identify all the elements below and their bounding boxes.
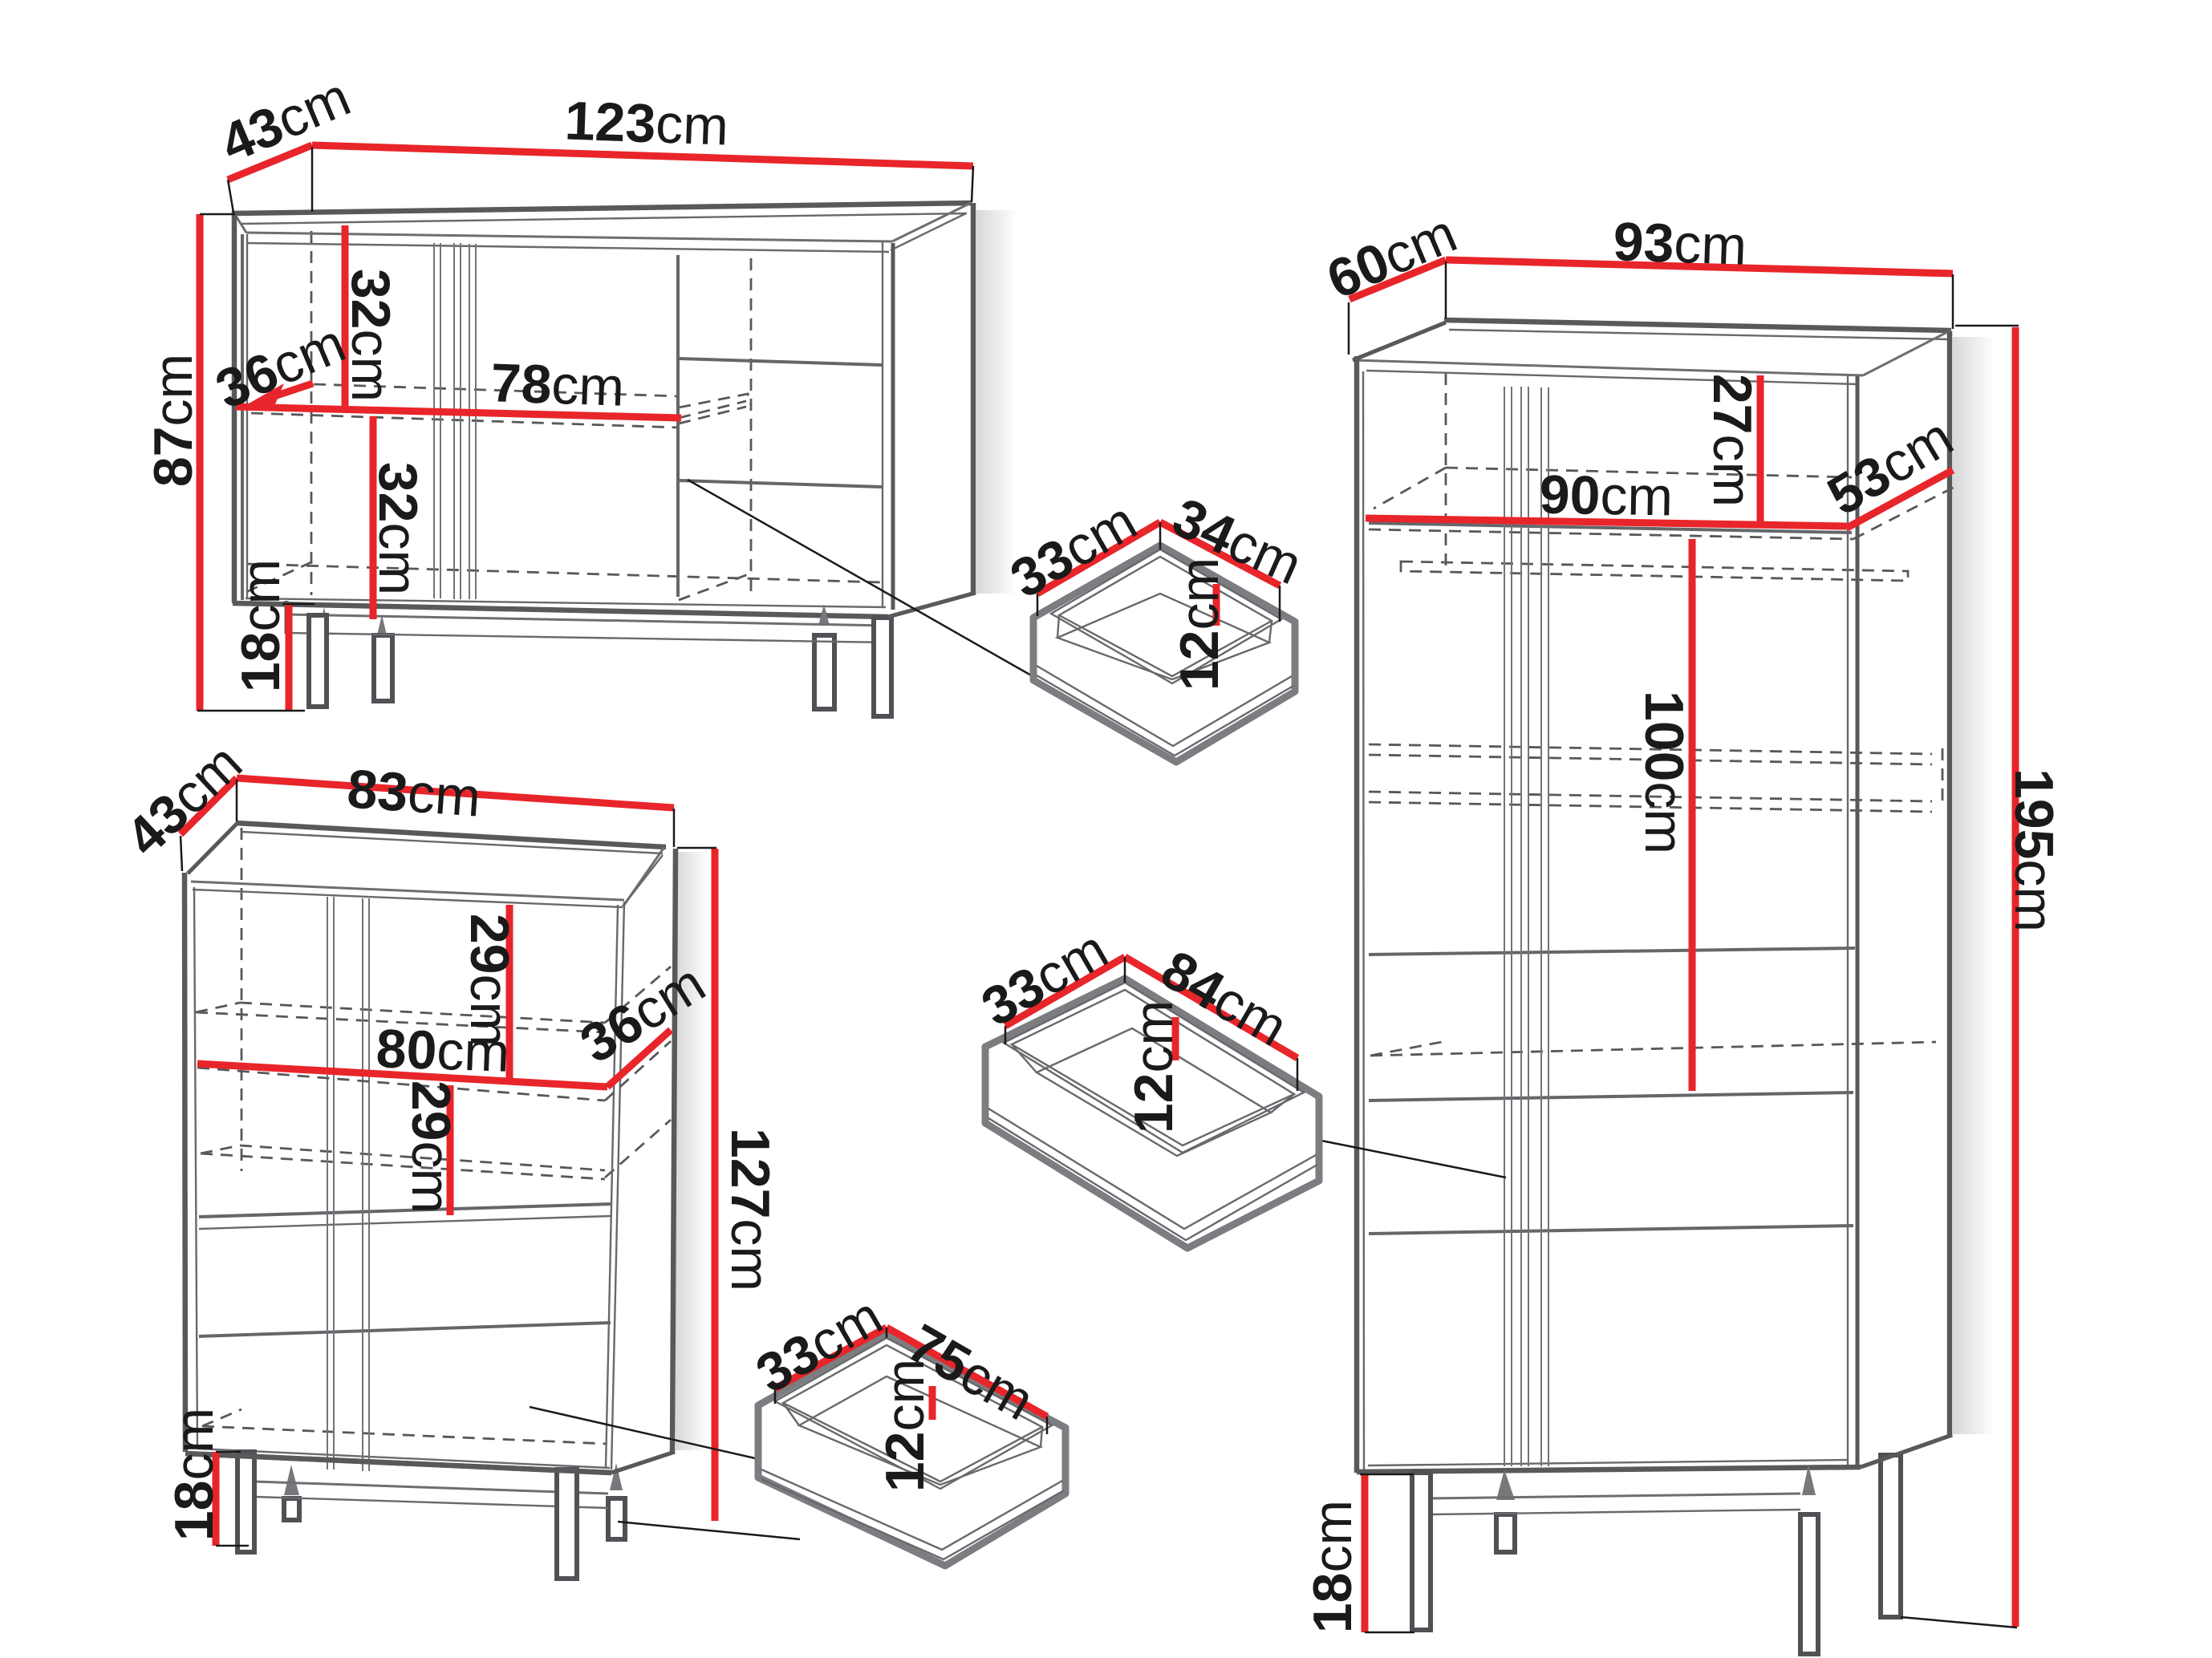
svg-text:12cm: 12cm xyxy=(1123,1000,1184,1133)
svg-text:18cm: 18cm xyxy=(164,1408,225,1541)
svg-text:123cm: 123cm xyxy=(564,90,730,156)
svg-text:93cm: 93cm xyxy=(1613,211,1748,277)
svg-text:18cm: 18cm xyxy=(230,559,291,692)
svg-text:100cm: 100cm xyxy=(1634,691,1695,854)
svg-text:127cm: 127cm xyxy=(720,1128,781,1291)
svg-text:80cm: 80cm xyxy=(375,1018,511,1084)
svg-text:12cm: 12cm xyxy=(875,1359,936,1492)
svg-text:32cm: 32cm xyxy=(340,269,401,402)
svg-text:195cm: 195cm xyxy=(2003,768,2064,932)
svg-text:29cm: 29cm xyxy=(400,1080,461,1214)
svg-text:27cm: 27cm xyxy=(1702,374,1763,507)
svg-text:90cm: 90cm xyxy=(1539,464,1674,528)
svg-text:83cm: 83cm xyxy=(345,758,482,828)
svg-text:78cm: 78cm xyxy=(490,352,626,418)
svg-text:12cm: 12cm xyxy=(1169,557,1230,691)
svg-text:18cm: 18cm xyxy=(1302,1500,1363,1633)
svg-text:32cm: 32cm xyxy=(367,462,428,595)
svg-text:87cm: 87cm xyxy=(143,354,204,487)
